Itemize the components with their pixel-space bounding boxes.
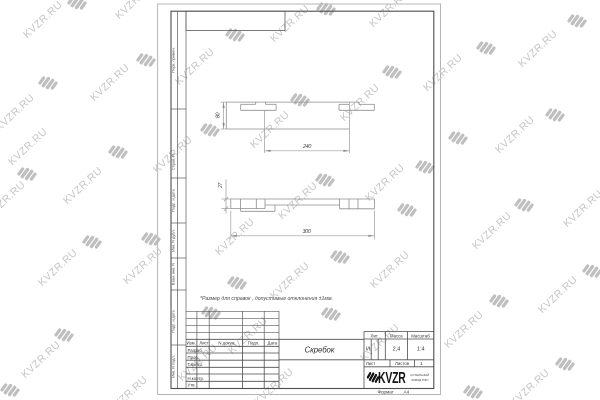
- svg-text:KVZR.RU: KVZR.RU: [493, 114, 537, 156]
- svg-text:Масса: Масса: [390, 334, 403, 339]
- svg-text:KVZR.RU: KVZR.RU: [508, 367, 552, 400]
- svg-text:KVZR.RU: KVZR.RU: [19, 339, 63, 381]
- svg-text:KVZR.RU: KVZR.RU: [106, 374, 150, 400]
- svg-text:Пров.: Пров.: [188, 355, 199, 360]
- svg-text:Листов: Листов: [395, 361, 410, 366]
- svg-text:Инв. N дубл.: Инв. N дубл.: [172, 229, 176, 251]
- svg-text:КОТЕЛЬНЫЙ: КОТЕЛЬНЫЙ: [410, 373, 429, 377]
- svg-text:KVZR.RU: KVZR.RU: [0, 92, 37, 134]
- svg-text:Скребок: Скребок: [305, 345, 335, 354]
- svg-text:KVZR.RU: KVZR.RU: [21, 0, 65, 41]
- svg-text:Изм.: Изм.: [187, 340, 196, 345]
- svg-text:Справ. N: Справ. N: [172, 154, 176, 170]
- svg-text:*Размер для справок , допустим: *Размер для справок , допустимые отклоне…: [200, 296, 333, 302]
- svg-text:Лист: Лист: [199, 340, 208, 345]
- svg-text:Подп. и дата: Подп. и дата: [172, 188, 176, 211]
- svg-text:ЗАВОД РЭП: ЗАВОД РЭП: [411, 378, 428, 382]
- svg-text:Масштаб: Масштаб: [411, 334, 430, 339]
- svg-text:А4: А4: [404, 389, 410, 394]
- svg-text:Взам. инв. N: Взам. инв. N: [172, 263, 176, 285]
- svg-text:Подп. и дата: Подп. и дата: [172, 309, 176, 332]
- svg-text:Формат: Формат: [378, 389, 395, 394]
- svg-text:KVZR: KVZR: [378, 369, 406, 387]
- svg-text:Лит.: Лит.: [371, 334, 379, 339]
- svg-text:300: 300: [302, 229, 310, 235]
- svg-text:Разраб.: Разраб.: [188, 348, 203, 353]
- svg-text:KVZR.RU: KVZR.RU: [36, 247, 80, 289]
- svg-text:KVZR.RU: KVZR.RU: [516, 28, 560, 70]
- svg-text:KVZR.RU: KVZR.RU: [88, 62, 132, 104]
- svg-text:KVZR.RU: KVZR.RU: [113, 0, 157, 22]
- svg-text:KVZR.RU: KVZR.RU: [470, 210, 514, 252]
- svg-text:1:4: 1:4: [417, 347, 425, 353]
- svg-text:80: 80: [216, 113, 222, 119]
- svg-text:KVZR.RU: KVZR.RU: [61, 165, 105, 207]
- svg-text:Дата: Дата: [268, 340, 278, 345]
- svg-text:Утв.: Утв.: [188, 383, 196, 388]
- svg-text:Н.контр.: Н.контр.: [188, 376, 205, 381]
- svg-text:Инв. N подл.: Инв. N подл.: [172, 355, 176, 377]
- svg-text:KVZR.RU: KVZR.RU: [536, 274, 580, 316]
- svg-text:KVZR.RU: KVZR.RU: [561, 188, 600, 230]
- svg-text:Перв. примен.: Перв. примен.: [172, 47, 176, 72]
- svg-text:2,4: 2,4: [393, 347, 401, 353]
- svg-text:Подп.: Подп.: [248, 340, 259, 345]
- svg-text:Лист: Лист: [366, 361, 375, 366]
- svg-text:И: И: [366, 347, 370, 353]
- svg-text:KVZR.RU: KVZR.RU: [0, 179, 28, 221]
- svg-text:KVZR.RU: KVZR.RU: [442, 309, 486, 351]
- svg-text:Т.контр.: Т.контр.: [188, 362, 204, 367]
- svg-text:N докум.: N докум.: [218, 340, 235, 345]
- svg-text:KVZR.RU: KVZR.RU: [6, 126, 50, 168]
- svg-text:240: 240: [302, 144, 311, 150]
